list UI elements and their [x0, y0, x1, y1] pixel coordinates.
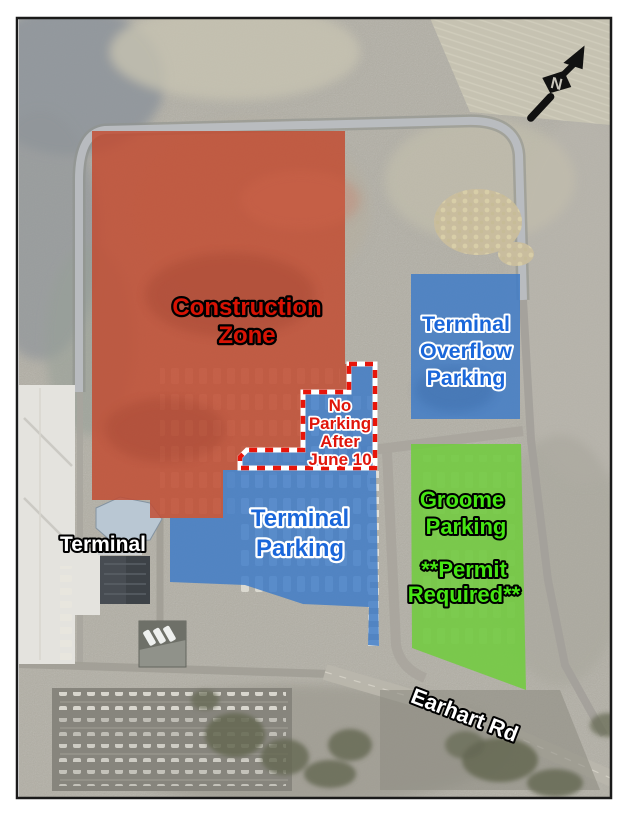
groome-permit-label-line2: Required**	[408, 582, 521, 607]
shuttle-building	[139, 621, 186, 667]
terminal-parking-label-line2: Parking	[256, 535, 344, 562]
groome-parking-label-line2: Parking	[426, 514, 507, 539]
no-parking-label-line2: Parking	[309, 414, 371, 433]
terminal-label: Terminal	[60, 533, 146, 556]
groome-parking-label-line1: Groome	[420, 487, 504, 512]
overflow-parking-label-line1: Terminal	[422, 312, 510, 336]
airport-parking-map: Construction Zone Terminal Overflow Park…	[0, 0, 631, 818]
groome-permit-label-line1: **Permit	[421, 557, 507, 582]
construction-zone-label-line2: Zone	[218, 322, 275, 349]
map-canvas: Construction Zone Terminal Overflow Park…	[0, 0, 631, 818]
overflow-parking-label-line2: Overflow	[420, 339, 512, 363]
no-parking-label-line3: After	[320, 432, 360, 451]
hangar-buildings	[100, 556, 150, 604]
terminal-parking-label-line1: Terminal	[251, 505, 349, 532]
construction-zone-label-line1: Construction	[172, 294, 321, 321]
overflow-parking-label-line3: Parking	[427, 366, 506, 390]
no-parking-label-line4: June 10	[308, 450, 371, 469]
no-parking-label-line1: No	[329, 396, 352, 415]
